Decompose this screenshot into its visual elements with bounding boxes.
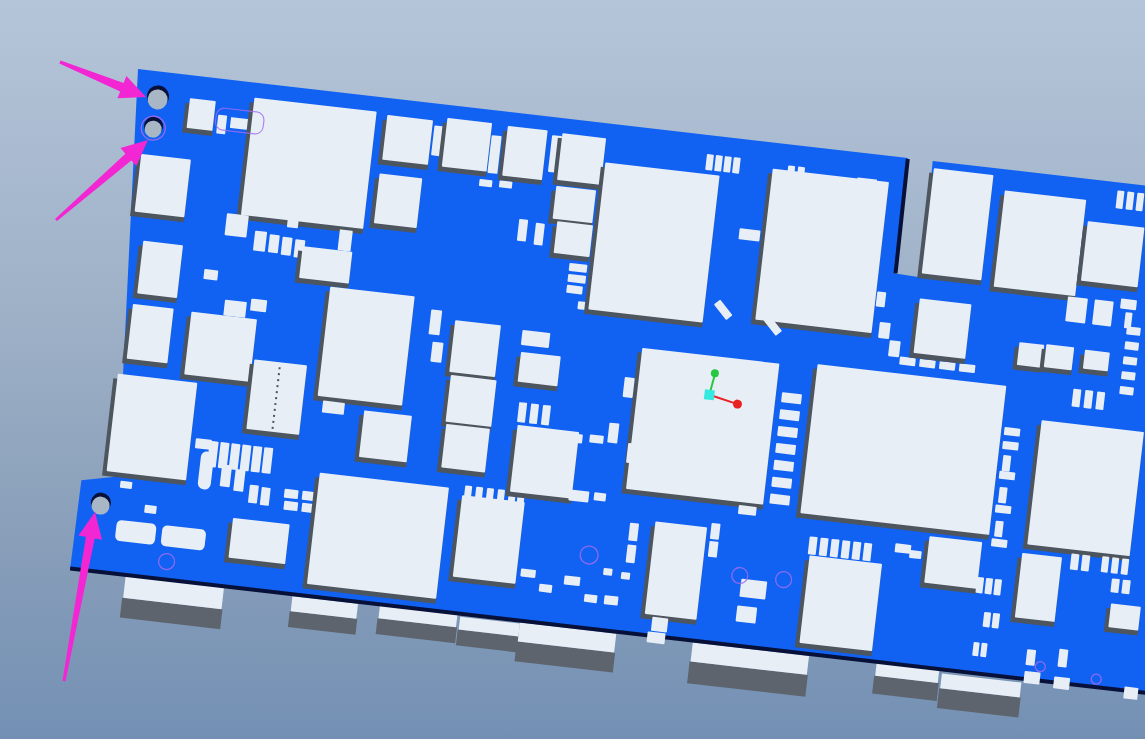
component	[144, 505, 157, 514]
component	[268, 234, 280, 253]
cad-3d-viewport[interactable]	[0, 0, 1145, 739]
component	[283, 501, 298, 512]
component	[710, 523, 721, 540]
component	[1025, 649, 1036, 666]
component	[588, 162, 719, 322]
component	[521, 330, 551, 348]
component	[1120, 298, 1137, 310]
component	[281, 237, 293, 256]
component	[878, 322, 891, 339]
component	[895, 543, 912, 554]
component	[604, 595, 619, 606]
component	[584, 594, 598, 603]
component	[137, 241, 183, 298]
component	[645, 521, 707, 619]
component	[338, 229, 353, 251]
component	[187, 98, 216, 131]
component	[922, 168, 994, 280]
component	[127, 304, 174, 363]
component	[502, 126, 547, 180]
component	[876, 291, 887, 307]
component	[1121, 371, 1136, 381]
component	[464, 485, 472, 498]
component	[564, 575, 581, 586]
component	[497, 489, 505, 502]
component	[1124, 341, 1139, 351]
component	[1065, 296, 1088, 323]
component	[1053, 676, 1070, 690]
component	[800, 364, 1006, 535]
component	[382, 115, 433, 165]
component	[994, 190, 1087, 296]
component	[518, 352, 561, 386]
component	[909, 550, 922, 559]
component	[203, 269, 218, 281]
component	[554, 221, 593, 257]
component	[479, 179, 493, 187]
component	[307, 473, 449, 599]
component	[442, 118, 492, 172]
component	[1110, 578, 1120, 593]
component	[446, 375, 497, 427]
component	[449, 320, 501, 377]
component	[736, 605, 758, 623]
component	[318, 287, 415, 406]
component	[250, 299, 267, 313]
component	[284, 489, 299, 500]
component	[453, 495, 525, 584]
component	[120, 481, 133, 489]
component	[557, 133, 606, 185]
component	[374, 173, 422, 228]
component	[299, 246, 352, 284]
component	[647, 631, 666, 644]
component	[589, 434, 604, 444]
component	[888, 340, 901, 357]
component	[107, 374, 198, 481]
component	[475, 487, 483, 500]
component	[1023, 671, 1040, 685]
component	[914, 298, 972, 359]
pcb-3d-scene[interactable]	[0, 0, 1145, 739]
component	[184, 312, 257, 382]
component	[224, 213, 248, 237]
component	[1123, 686, 1138, 700]
component	[430, 342, 443, 363]
component	[1123, 356, 1138, 366]
component	[568, 489, 589, 502]
component	[1015, 553, 1062, 622]
component	[647, 595, 662, 606]
component	[253, 231, 267, 252]
component	[1121, 580, 1131, 595]
axis-origin-marker	[704, 389, 715, 400]
component	[241, 98, 377, 229]
component	[228, 518, 289, 564]
component	[1081, 221, 1145, 287]
component	[486, 488, 494, 501]
component	[1027, 420, 1144, 556]
component	[924, 536, 982, 589]
component	[135, 154, 191, 217]
component	[621, 572, 631, 580]
component	[1126, 326, 1141, 336]
component	[603, 568, 613, 576]
component	[593, 492, 606, 501]
component	[499, 180, 513, 188]
component	[1119, 386, 1134, 396]
component	[867, 249, 878, 264]
component	[359, 410, 412, 462]
pcb-board	[65, 68, 1145, 739]
component	[322, 400, 345, 414]
component	[520, 568, 536, 578]
component	[553, 186, 597, 223]
component	[1083, 350, 1110, 372]
component	[651, 617, 669, 633]
component	[708, 541, 719, 558]
component	[1092, 299, 1114, 326]
annotation-arrow	[59, 61, 146, 99]
component	[799, 555, 882, 651]
component	[1108, 603, 1141, 630]
component	[223, 300, 247, 318]
component	[539, 584, 553, 593]
component	[441, 424, 490, 473]
component	[1044, 344, 1074, 370]
